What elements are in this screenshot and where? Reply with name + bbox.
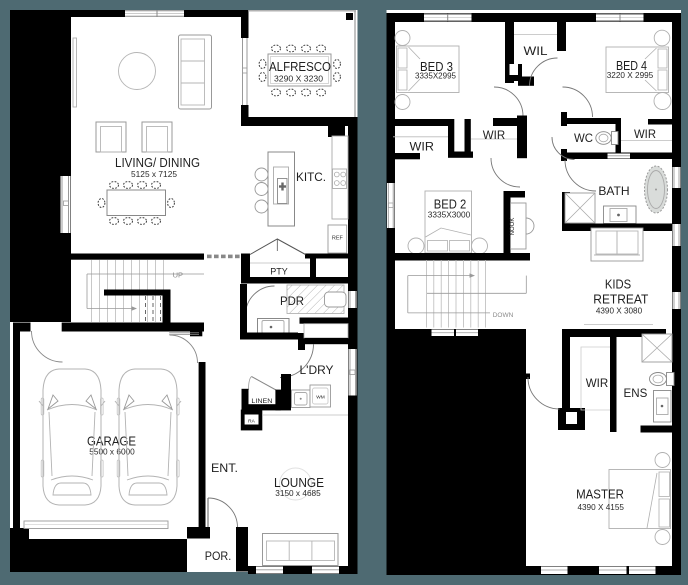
svg-text:5500 x 6000: 5500 x 6000 (89, 447, 135, 457)
svg-text:ALFRESCO: ALFRESCO (269, 59, 331, 74)
svg-text:L'DRY: L'DRY (300, 363, 334, 377)
svg-text:WM: WM (316, 395, 325, 401)
svg-text:KIDS: KIDS (605, 277, 632, 292)
svg-text:PTY: PTY (270, 267, 288, 278)
svg-text:WIL: WIL (524, 44, 548, 58)
svg-text:4390 X 4155: 4390 X 4155 (577, 502, 624, 512)
svg-text:DOWN: DOWN (493, 312, 514, 319)
svg-text:4390 X 3080: 4390 X 3080 (596, 306, 643, 316)
svg-text:3335X2995: 3335X2995 (415, 71, 456, 81)
svg-text:3220 X 2995: 3220 X 2995 (607, 70, 654, 80)
svg-text:LIVING/ DINING: LIVING/ DINING (115, 155, 200, 170)
svg-text:REF: REF (332, 236, 344, 242)
svg-text:PDR: PDR (280, 294, 304, 308)
svg-text:3290 X 3230: 3290 X 3230 (274, 74, 323, 84)
svg-text:WC: WC (574, 131, 593, 145)
svg-text:WIR: WIR (410, 140, 435, 154)
svg-text:NOOK: NOOK (510, 218, 516, 236)
svg-text:5125 x 7125: 5125 x 7125 (131, 169, 177, 179)
svg-text:3150 x 4685: 3150 x 4685 (275, 488, 321, 498)
svg-text:LINEN: LINEN (251, 398, 272, 405)
svg-text:ENS: ENS (624, 386, 648, 400)
svg-text:POR.: POR. (205, 549, 232, 563)
svg-text:KITC.: KITC. (296, 170, 326, 184)
svg-text:WIR: WIR (483, 128, 506, 142)
svg-text:WIR: WIR (634, 127, 656, 141)
svg-text:3335X3000: 3335X3000 (428, 210, 471, 220)
svg-text:ENT.: ENT. (211, 461, 238, 475)
svg-text:RETREAT: RETREAT (593, 292, 648, 307)
svg-text:RA: RA (248, 418, 255, 424)
svg-text:WIR: WIR (586, 376, 609, 390)
svg-text:MASTER: MASTER (576, 487, 624, 502)
svg-text:BATH: BATH (598, 184, 629, 198)
svg-text:UP: UP (173, 271, 183, 280)
